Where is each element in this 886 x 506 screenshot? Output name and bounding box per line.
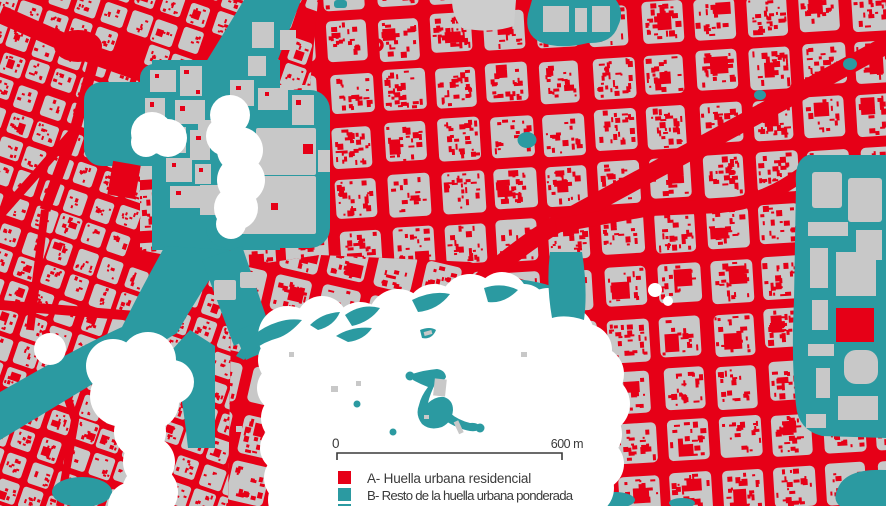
svg-text:A- Huella urbana residencial: A- Huella urbana residencial [367, 471, 531, 486]
svg-text:0: 0 [332, 436, 340, 451]
svg-text:B- Resto de la huella urbana p: B- Resto de la huella urbana ponderada [367, 488, 574, 503]
svg-text:600 m: 600 m [551, 437, 583, 451]
